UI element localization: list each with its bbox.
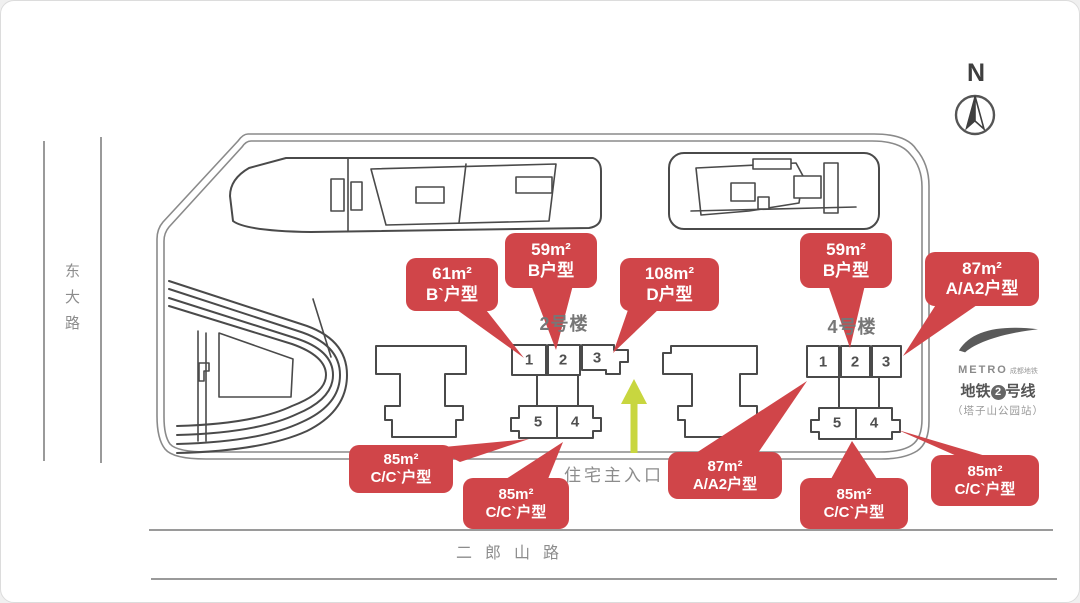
callout-61-b-prime: 61m² B`户型 xyxy=(406,258,498,311)
callout-85-c-right1: 85m² C/C`户型 xyxy=(800,478,908,529)
building-2-unit-1: 1 xyxy=(525,352,533,369)
building-4-unit-1: 1 xyxy=(819,354,827,371)
north-structure-left xyxy=(230,158,601,232)
building-4-unit-2: 2 xyxy=(851,354,859,371)
metro-line-name: 地铁2号线 xyxy=(939,380,1057,401)
metro-station-name: （塔子山公园站） xyxy=(939,403,1057,418)
building-4-name: 4号楼 xyxy=(817,313,887,339)
metro-brand: METRO xyxy=(958,364,1008,376)
callout-108-d: 108m² D户型 xyxy=(620,258,719,311)
curved-ramp-structure xyxy=(169,281,347,453)
building-2-unit-3: 3 xyxy=(593,350,601,367)
building-4-unit-4: 4 xyxy=(870,415,878,432)
entrance-arrow-icon xyxy=(621,379,647,453)
compass-north-label: N xyxy=(959,59,993,88)
site-plan-page: N 东大路 二郎山路 住宅主入口 2号楼 4号楼 1 2 3 5 4 1 2 3… xyxy=(0,0,1080,603)
metro-brand-sub: 成都地铁 xyxy=(1010,368,1038,375)
callout-85-c-right2: 85m² C/C`户型 xyxy=(931,455,1039,506)
metro-line-number-badge: 2 xyxy=(991,385,1006,400)
building-4-unit-5: 5 xyxy=(833,415,841,432)
callout-87-a-top: 87m² A/A2户型 xyxy=(925,252,1039,306)
building-2-unit-4: 4 xyxy=(571,414,579,431)
building-2-unit-5: 5 xyxy=(534,414,542,431)
north-structure-right xyxy=(669,153,879,229)
entrance-label: 住宅主入口 xyxy=(564,461,664,486)
building-4-unit-3: 3 xyxy=(882,354,890,371)
building-2-unit-2: 2 xyxy=(559,352,567,369)
compass-icon xyxy=(956,96,994,134)
road-label-west: 东大路 xyxy=(61,263,82,341)
building-1-outline xyxy=(376,346,466,437)
callout-85-c-center: 85m² C/C`户型 xyxy=(463,478,569,529)
callout-59-b-right: 59m² B户型 xyxy=(800,233,892,288)
building-2-name: 2号楼 xyxy=(529,310,599,336)
callout-85-c-left: 85m² C/C`户型 xyxy=(349,445,453,493)
metro-logo: METRO成都地铁 地铁2号线 （塔子山公园站） xyxy=(939,323,1057,418)
metro-swoosh-icon xyxy=(952,323,1044,355)
road-label-south: 二郎山路 xyxy=(456,539,572,563)
callout-87-a-bottom: 87m² A/A2户型 xyxy=(668,452,782,499)
callout-59-b-left: 59m² B户型 xyxy=(505,233,597,288)
